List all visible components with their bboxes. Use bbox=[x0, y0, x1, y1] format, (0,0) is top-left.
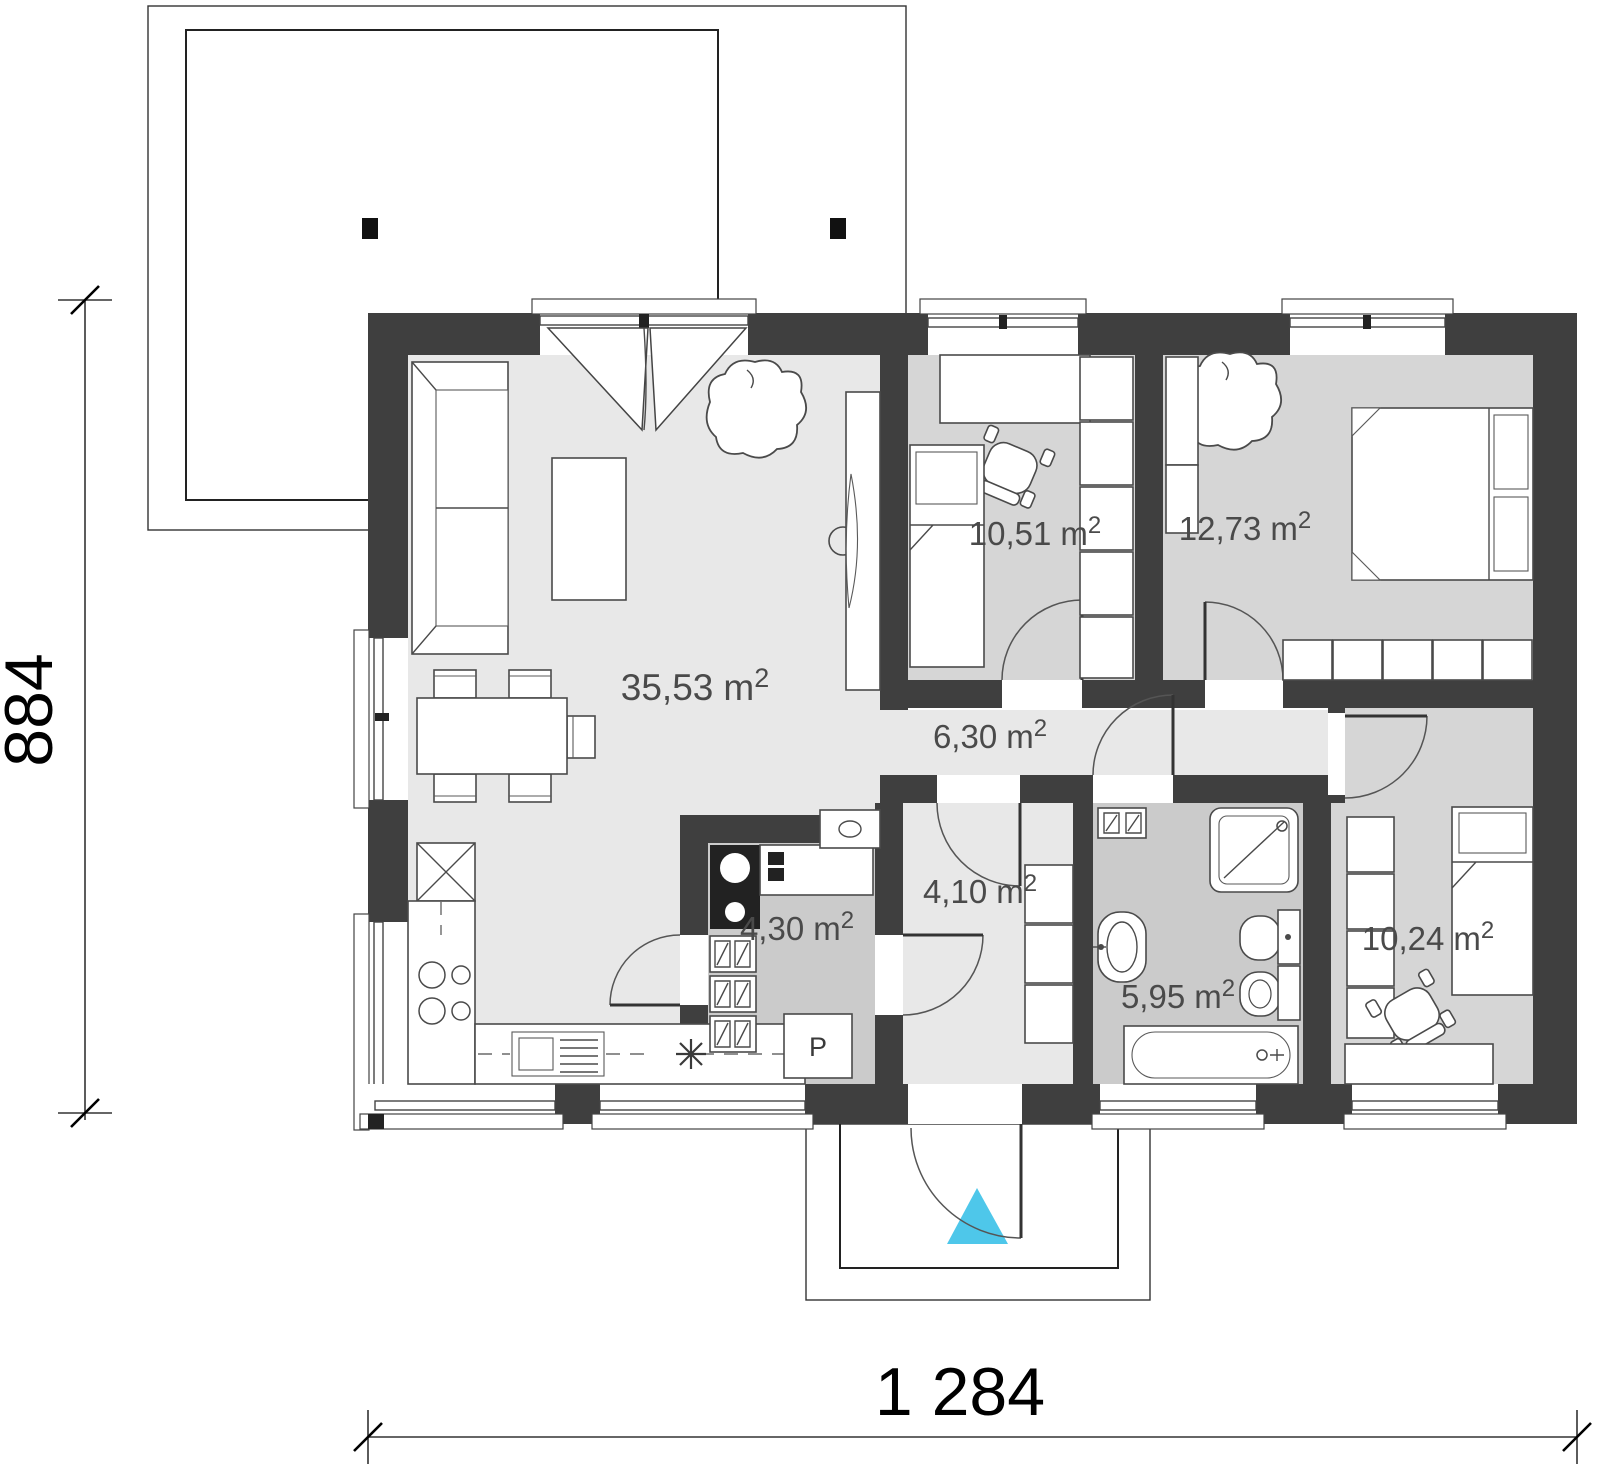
pantry-marker-label: P bbox=[809, 1032, 827, 1062]
dimension-height-label: 884 bbox=[0, 653, 67, 766]
dimension-left: 884 bbox=[0, 286, 112, 1127]
window bbox=[920, 299, 1086, 355]
room-area-label-living: 35,53m2 bbox=[621, 663, 769, 708]
washbasin bbox=[1093, 912, 1146, 982]
floor-plan-page: P bbox=[0, 0, 1600, 1478]
desk bbox=[1345, 1044, 1493, 1084]
shower bbox=[1210, 808, 1298, 892]
double-bed bbox=[1352, 408, 1533, 580]
entrance-porch bbox=[806, 1124, 1150, 1300]
appliance-marker-asterisk bbox=[676, 1039, 706, 1069]
floor-plan-drawing: P bbox=[0, 0, 1600, 1478]
worktop-sink-unit bbox=[760, 845, 873, 895]
window bbox=[354, 630, 408, 808]
roof-post-icon bbox=[830, 218, 846, 239]
pantry-marker-box: P bbox=[784, 1014, 852, 1078]
room-area-label-bedroom-1: 10,51m2 bbox=[969, 512, 1101, 552]
dimension-width-label: 1 284 bbox=[875, 1354, 1045, 1430]
plant-icon bbox=[707, 360, 807, 457]
chair-seat bbox=[434, 670, 476, 698]
roof-post-icon bbox=[362, 218, 378, 239]
room-area-label-bedroom-3: 10,24m2 bbox=[1362, 917, 1494, 957]
dresser bbox=[1283, 640, 1532, 680]
room-area-label-bedroom-2: 12,73m2 bbox=[1179, 507, 1311, 547]
room-area-label-hallway: 6,30m2 bbox=[933, 715, 1047, 755]
sofa bbox=[412, 362, 508, 654]
shelf bbox=[1166, 357, 1198, 533]
window bbox=[1092, 1084, 1264, 1129]
single-bed bbox=[1452, 807, 1533, 995]
room-area-label-bathroom: 5,95m2 bbox=[1121, 975, 1235, 1015]
window bbox=[1282, 299, 1453, 355]
dimension-bottom: 1 284 bbox=[354, 1354, 1591, 1464]
water-heater bbox=[820, 810, 880, 848]
dining-table bbox=[417, 698, 567, 774]
bidet bbox=[1240, 966, 1300, 1020]
shelf-boxes bbox=[710, 936, 756, 1052]
room-area-label-pantry: 4,30m2 bbox=[740, 907, 854, 947]
window bbox=[1344, 1084, 1506, 1129]
kitchen-tall-cabinet bbox=[417, 843, 475, 901]
kitchen-counter-left bbox=[408, 901, 475, 1084]
window bbox=[592, 1084, 813, 1129]
kitchen-sink bbox=[512, 1032, 604, 1076]
toilet bbox=[1240, 910, 1300, 964]
bathtub bbox=[1124, 1026, 1298, 1084]
single-bed bbox=[910, 445, 984, 667]
desk bbox=[940, 355, 1090, 423]
room-area-label-entry: 4,10m2 bbox=[923, 870, 1037, 910]
washing-machine-icon bbox=[1098, 808, 1146, 838]
coffee-table bbox=[552, 458, 626, 600]
